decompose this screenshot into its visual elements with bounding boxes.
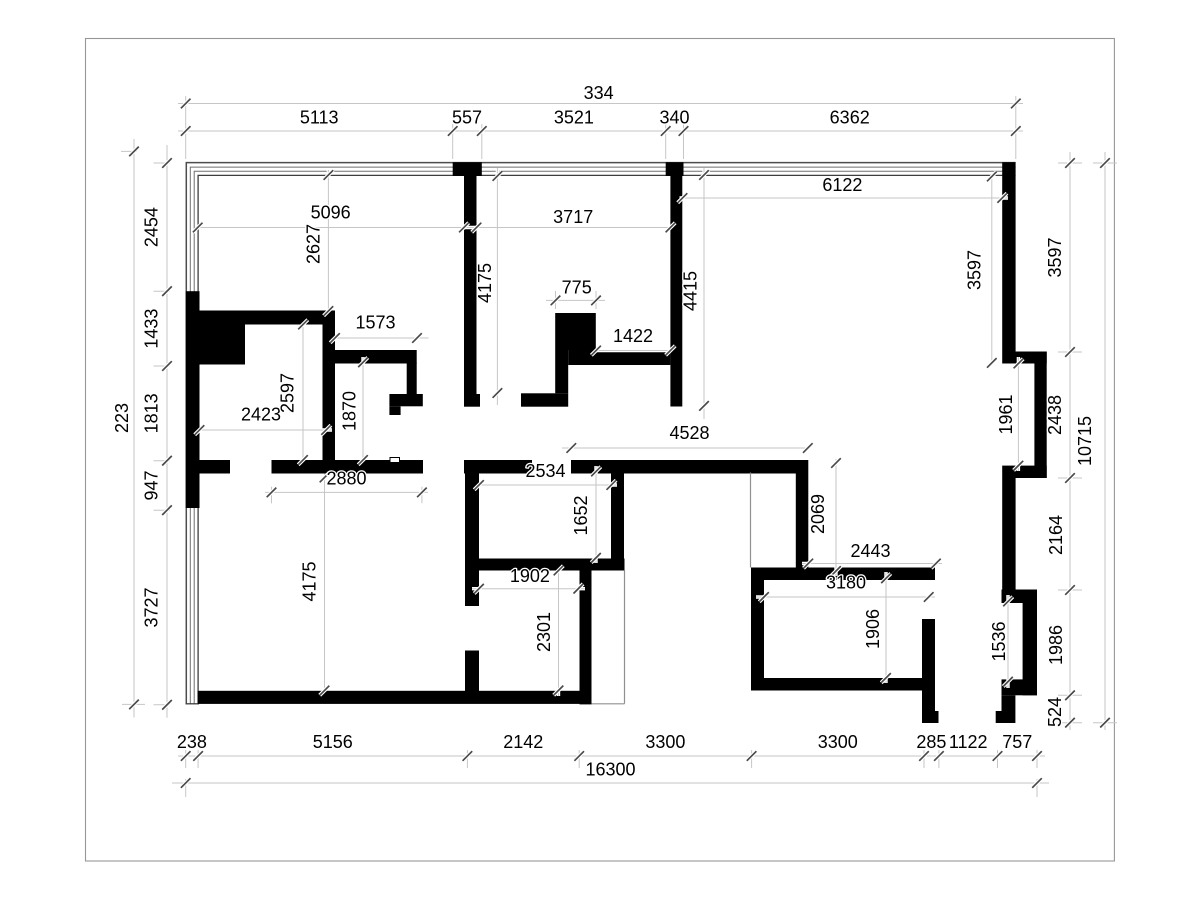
svg-text:1652: 1652 <box>571 495 591 535</box>
svg-text:2438: 2438 <box>1045 395 1065 435</box>
svg-text:1906: 1906 <box>863 609 883 649</box>
svg-text:1902: 1902 <box>510 566 550 586</box>
svg-text:524: 524 <box>1045 697 1065 727</box>
svg-text:1536: 1536 <box>989 621 1009 661</box>
svg-text:1986: 1986 <box>1046 625 1066 665</box>
svg-text:238: 238 <box>177 732 207 752</box>
svg-text:4175: 4175 <box>475 263 495 303</box>
svg-text:10715: 10715 <box>1075 416 1095 466</box>
svg-text:3727: 3727 <box>142 587 162 627</box>
svg-text:1870: 1870 <box>339 391 359 431</box>
svg-text:1573: 1573 <box>355 312 395 332</box>
svg-text:3521: 3521 <box>554 107 594 127</box>
svg-text:757: 757 <box>1002 732 1032 752</box>
svg-text:5156: 5156 <box>313 732 353 752</box>
svg-text:1122: 1122 <box>949 732 988 752</box>
svg-text:5113: 5113 <box>300 107 339 127</box>
svg-text:2880: 2880 <box>326 468 366 488</box>
svg-text:557: 557 <box>452 107 482 127</box>
svg-text:947: 947 <box>142 470 162 500</box>
svg-text:5096: 5096 <box>311 203 351 223</box>
svg-text:1433: 1433 <box>142 309 162 349</box>
svg-text:2627: 2627 <box>303 224 323 264</box>
svg-text:1422: 1422 <box>613 326 653 346</box>
svg-text:3300: 3300 <box>818 732 858 752</box>
svg-text:223: 223 <box>112 403 132 433</box>
svg-text:2423: 2423 <box>241 404 281 424</box>
svg-text:3597: 3597 <box>964 250 984 290</box>
svg-text:6362: 6362 <box>830 107 870 127</box>
svg-text:4415: 4415 <box>680 271 700 311</box>
svg-text:334: 334 <box>584 83 614 103</box>
svg-text:6122: 6122 <box>822 175 862 195</box>
svg-text:1961: 1961 <box>996 394 1016 434</box>
svg-text:340: 340 <box>659 107 689 127</box>
svg-text:2534: 2534 <box>525 461 565 481</box>
svg-text:4528: 4528 <box>669 423 709 443</box>
svg-text:3717: 3717 <box>553 207 593 227</box>
svg-text:3180: 3180 <box>826 573 866 593</box>
svg-text:775: 775 <box>562 277 592 297</box>
svg-text:3597: 3597 <box>1045 237 1065 277</box>
svg-text:2443: 2443 <box>850 541 890 561</box>
svg-text:16300: 16300 <box>585 759 635 779</box>
svg-text:3300: 3300 <box>645 732 685 752</box>
svg-text:2069: 2069 <box>808 494 828 534</box>
svg-text:2142: 2142 <box>503 732 543 752</box>
svg-text:285: 285 <box>916 732 946 752</box>
svg-text:2301: 2301 <box>534 612 554 652</box>
svg-text:2597: 2597 <box>277 373 297 413</box>
svg-text:2454: 2454 <box>142 207 162 247</box>
svg-text:1813: 1813 <box>142 393 162 433</box>
svg-text:2164: 2164 <box>1046 515 1066 555</box>
svg-text:4175: 4175 <box>299 561 319 601</box>
